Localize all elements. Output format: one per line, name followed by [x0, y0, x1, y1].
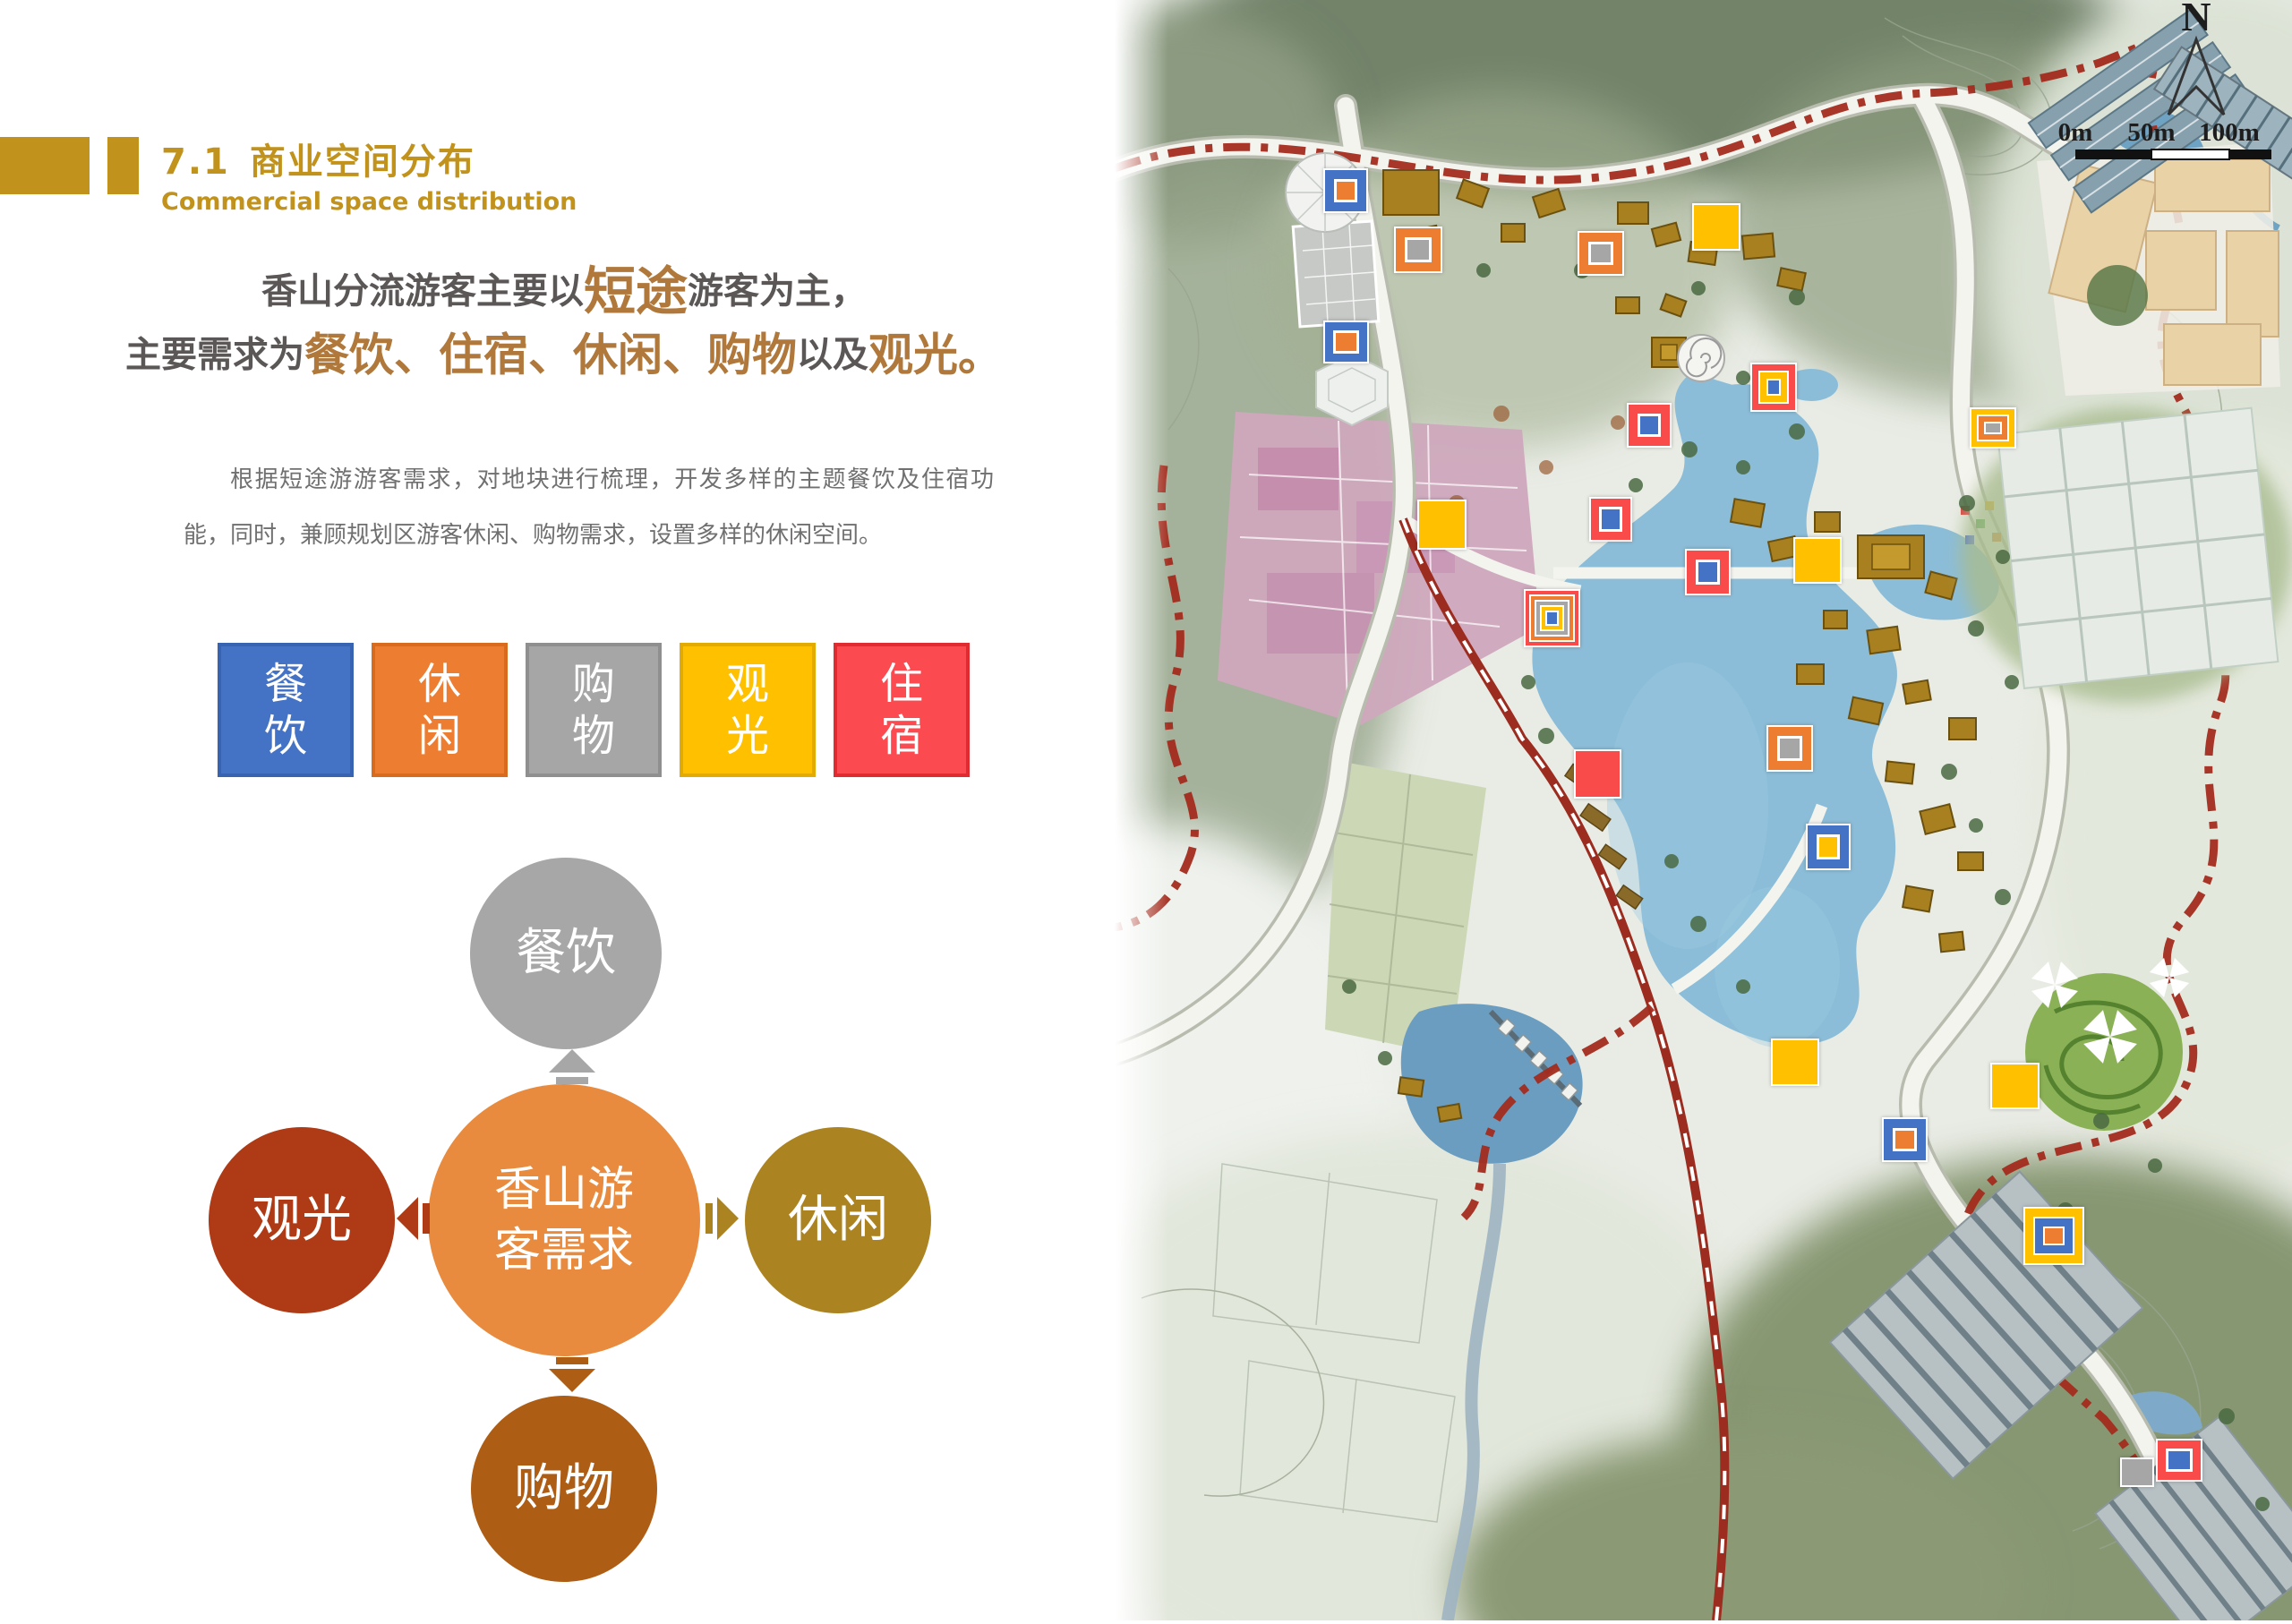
headline-text: 香山分流游客主要以: [261, 271, 584, 312]
section-marker-bar: [0, 137, 90, 194]
title-block: 7.1商业空间分布 Commercial space distribution: [161, 132, 577, 216]
headline-highlight: 观光。: [868, 329, 1003, 380]
arrow-down-icon: [549, 1357, 595, 1392]
legend-char: 饮: [264, 710, 307, 762]
headline-text: 游客为主，: [688, 271, 867, 312]
legend-char: 物: [572, 710, 615, 762]
svg-text:0m: 0m: [2058, 118, 2093, 147]
svg-text:N: N: [2181, 0, 2211, 39]
arrow-up-icon: [549, 1049, 595, 1084]
legend-item-lodging: 住 宿: [834, 643, 970, 777]
left-panel: 7.1商业空间分布 Commercial space distribution …: [0, 0, 1115, 1620]
legend-item-shopping: 购 物: [526, 643, 662, 777]
map-panel: N 0m 50m 100m: [1115, 0, 2292, 1620]
diagram-circle-label: 观光: [252, 1189, 352, 1252]
intro-paragraph: 根据短途游游客需求，对地块进行梳理，开发多样的主题餐饮及住宿功能，同时，兼顾规划…: [184, 452, 994, 563]
page-title: 7.1商业空间分布: [161, 132, 577, 184]
headline-line-2: 主要需求为餐饮、住宿、休闲、购物以及观光。: [36, 321, 1092, 389]
section-title: 商业空间分布: [250, 141, 475, 183]
legend-char: 宿: [880, 710, 923, 762]
section-number: 7.1: [161, 141, 230, 183]
diagram-circle-label: 购物: [514, 1457, 614, 1520]
section-marker-bar-small: [107, 137, 139, 194]
diagram-circle-sightseeing: 观光: [209, 1127, 395, 1313]
svg-text:50m: 50m: [2127, 118, 2175, 147]
diagram-circle-leisure: 休闲: [745, 1127, 931, 1313]
legend-char: 闲: [418, 710, 461, 762]
legend-item-leisure: 休 闲: [372, 643, 508, 777]
arrow-left-icon: [397, 1197, 430, 1240]
scale-bar: 0m 50m 100m: [2058, 118, 2271, 159]
legend-char: 观: [726, 658, 769, 710]
diagram-circle-label: 餐饮: [516, 922, 616, 985]
headline: 香山分流游客主要以短途游客为主， 主要需求为餐饮、住宿、休闲、购物以及观光。: [36, 261, 1092, 388]
diagram-center-line: 香山游: [494, 1159, 634, 1220]
headline-text: 以及: [797, 334, 868, 375]
arrow-right-icon: [706, 1197, 739, 1240]
headline-highlight: 短途: [584, 261, 688, 322]
diagram-circle-center: 香山游 客需求: [428, 1084, 700, 1356]
diagram-circle-shopping: 购物: [471, 1396, 657, 1582]
legend-char: 光: [726, 710, 769, 762]
headline-line-1: 香山分流游客主要以短途游客为主，: [36, 261, 1092, 321]
diagram-circle-label: 休闲: [788, 1189, 888, 1252]
site-plan-map: N 0m 50m 100m: [1115, 0, 2292, 1620]
legend-item-sightseeing: 观 光: [680, 643, 816, 777]
legend-char: 购: [572, 658, 615, 710]
diagram-circle-dining: 餐饮: [470, 858, 662, 1049]
legend-char: 餐: [264, 658, 307, 710]
headline-highlight: 餐饮、住宿、休闲、购物: [304, 329, 797, 380]
svg-text:100m: 100m: [2199, 118, 2260, 147]
legend-char: 休: [418, 658, 461, 710]
page-subtitle: Commercial space distribution: [161, 188, 577, 216]
headline-text: 主要需求为: [125, 334, 304, 375]
legend-item-dining: 餐 饮: [218, 643, 354, 777]
legend-char: 住: [880, 658, 923, 710]
diagram-center-line: 客需求: [494, 1220, 634, 1281]
